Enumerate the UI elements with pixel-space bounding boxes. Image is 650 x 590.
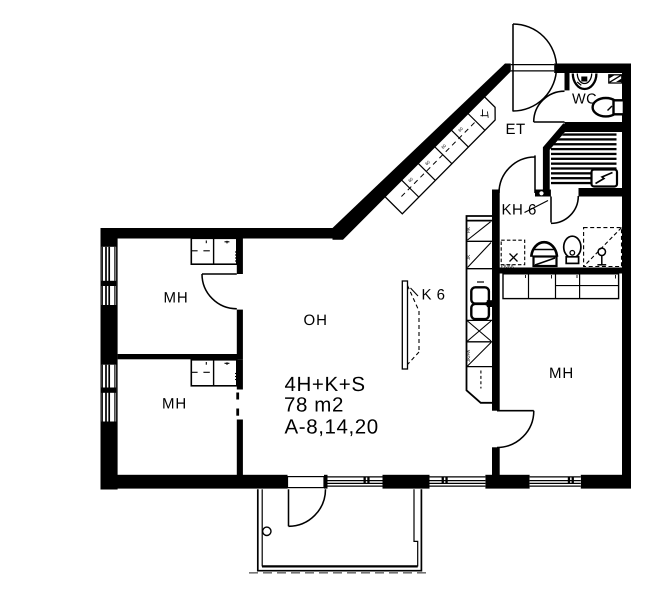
svg-text:MH: MH <box>162 396 187 413</box>
svg-text:MH: MH <box>164 290 189 307</box>
svg-text:KH 6: KH 6 <box>502 202 537 219</box>
svg-text:PA: PA <box>466 227 471 233</box>
svg-text:A-8,14,20: A-8,14,20 <box>285 416 379 439</box>
svg-text:ET: ET <box>506 121 526 138</box>
svg-text:JK: JK <box>466 255 471 260</box>
svg-text:PK/KK: PK/KK <box>501 264 514 269</box>
svg-text:JK/PA: JK/PA <box>466 350 471 362</box>
svg-text:78 m2: 78 m2 <box>284 394 344 417</box>
svg-text:MH: MH <box>549 365 574 382</box>
svg-text:K 6: K 6 <box>422 287 446 304</box>
svg-text:OH: OH <box>304 312 328 329</box>
svg-text:WC: WC <box>572 92 597 108</box>
